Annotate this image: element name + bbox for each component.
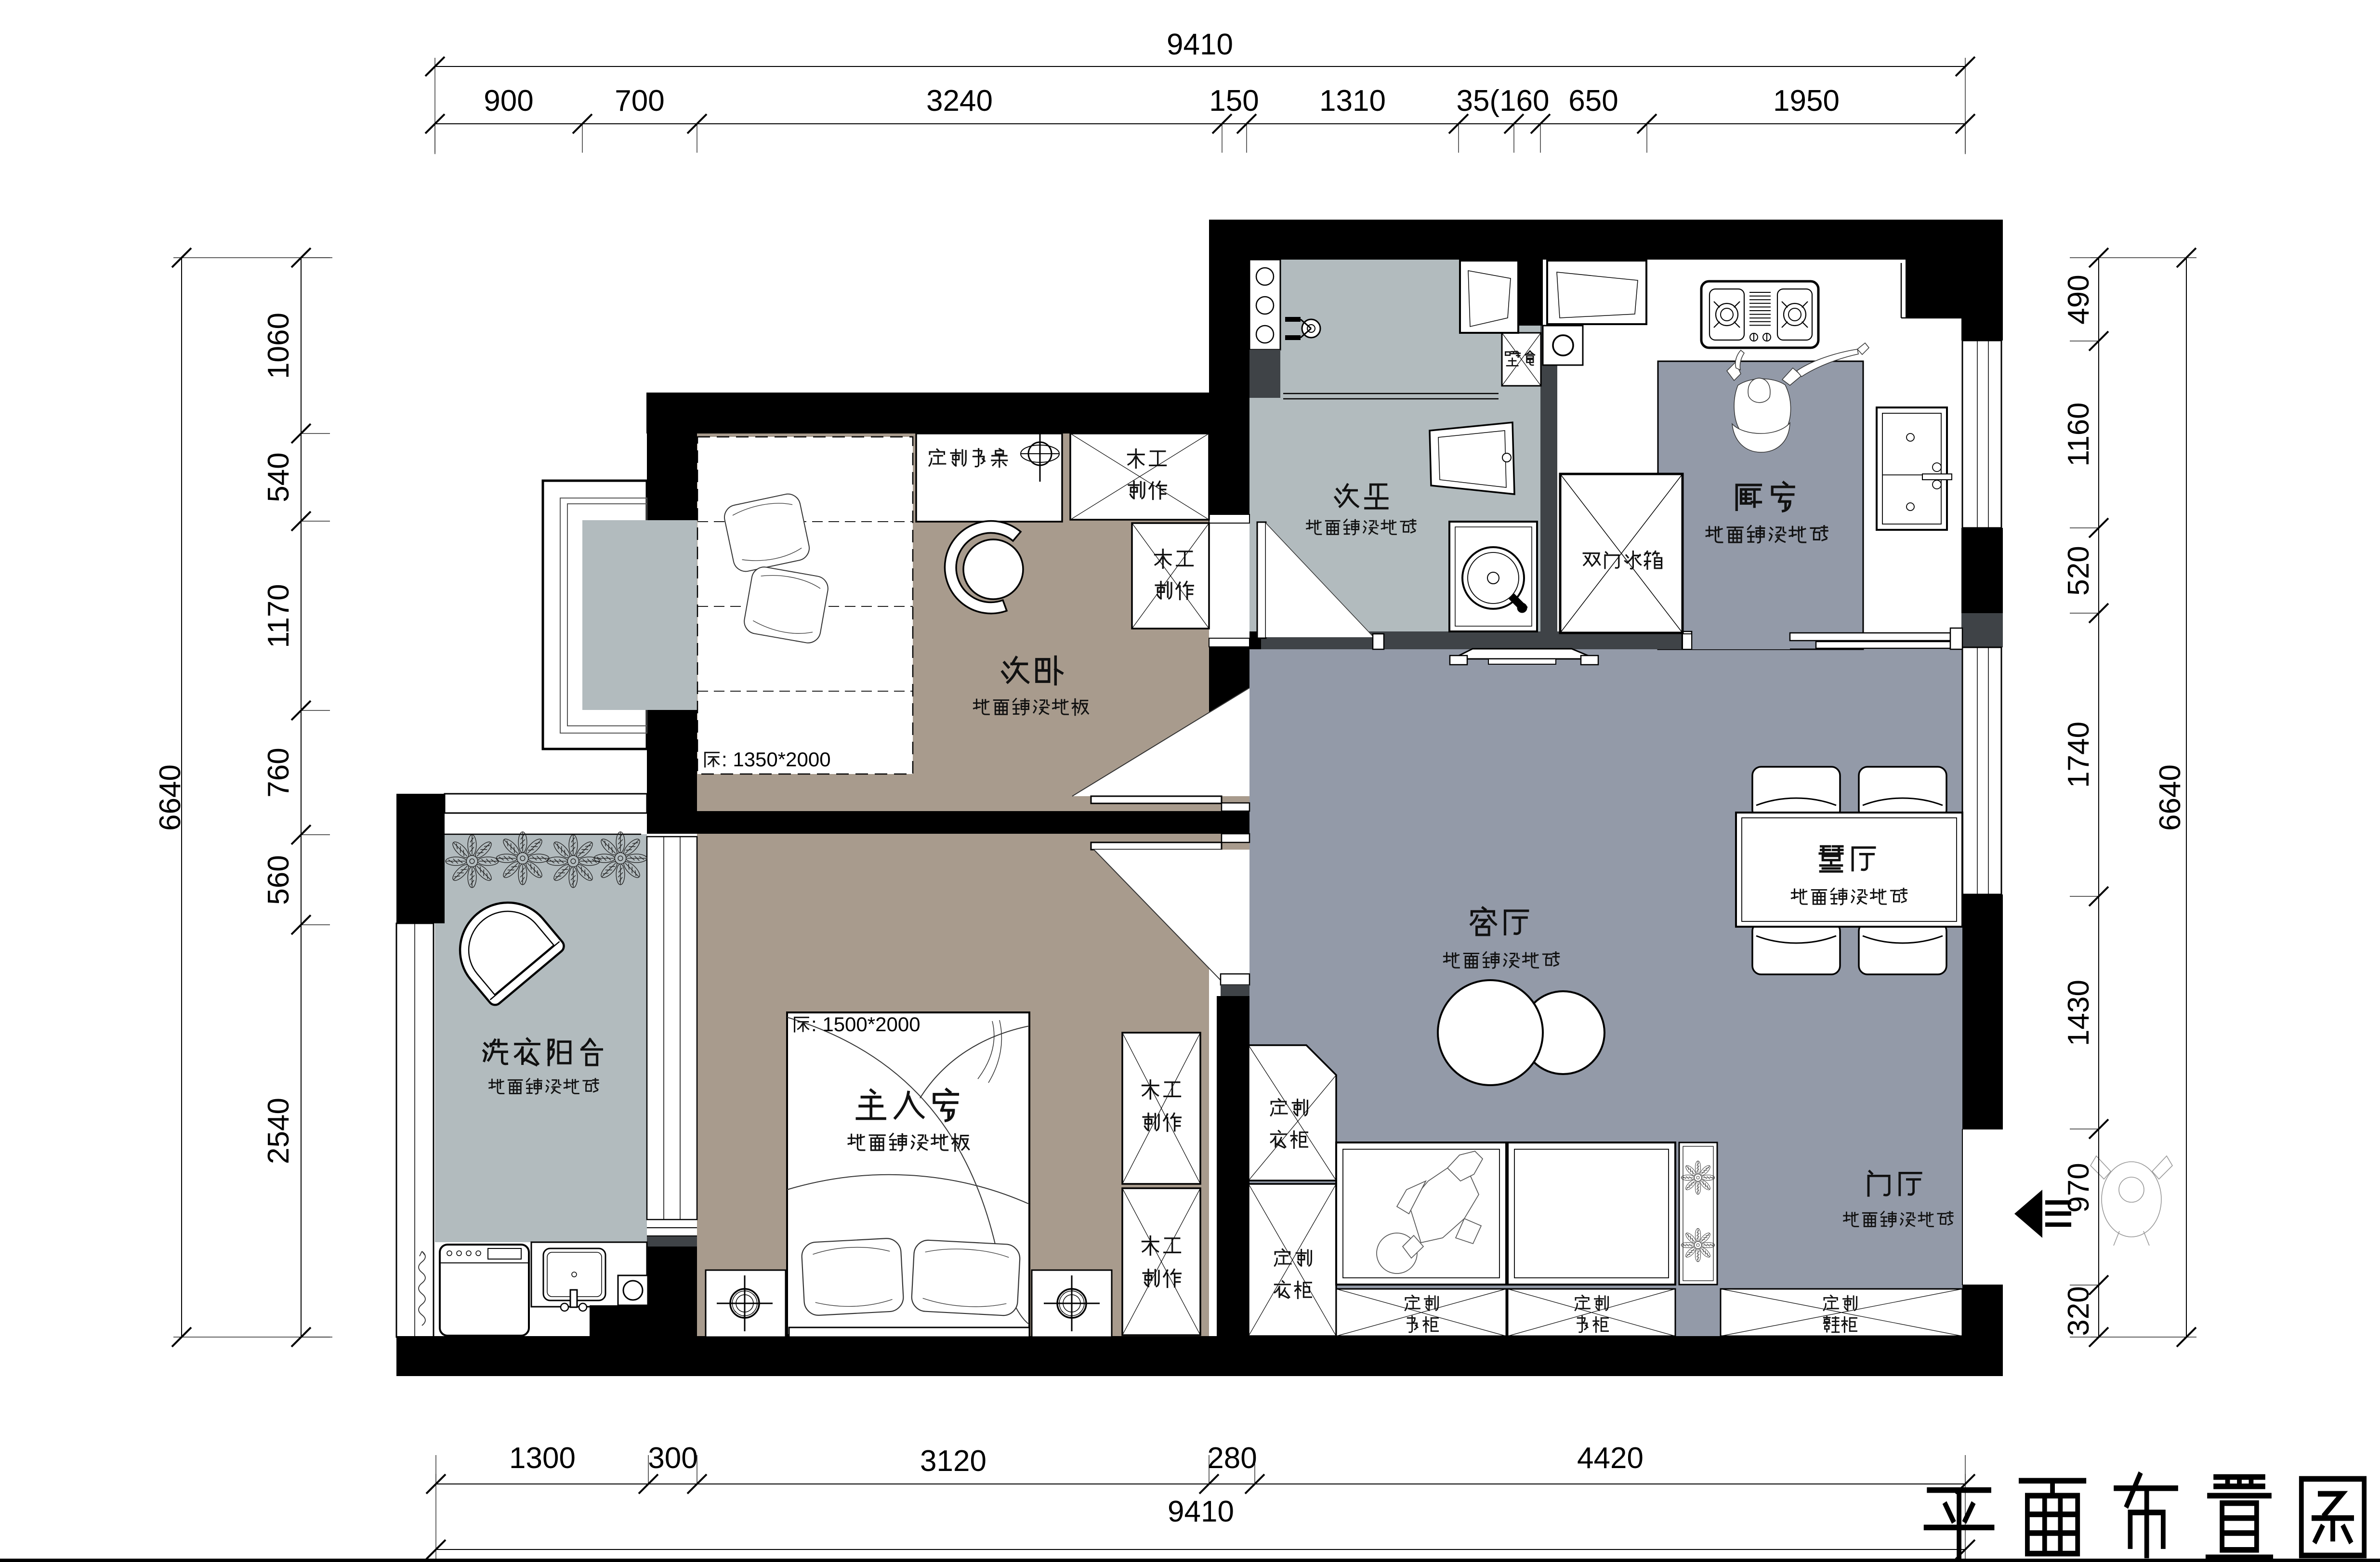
svg-text:9410: 9410 [1168, 1495, 1234, 1528]
svg-text:560: 560 [262, 855, 295, 905]
svg-text:280: 280 [1207, 1442, 1257, 1475]
svg-text:490: 490 [2062, 275, 2095, 324]
svg-text:1310: 1310 [1319, 84, 1386, 118]
svg-text:6640: 6640 [154, 764, 187, 831]
svg-text:520: 520 [2062, 546, 2095, 595]
svg-text:2540: 2540 [262, 1098, 295, 1164]
svg-text:320: 320 [2062, 1286, 2095, 1336]
svg-text:1950: 1950 [1773, 84, 1840, 118]
svg-text:: 1500*2000: : 1500*2000 [811, 1013, 920, 1036]
svg-text:760: 760 [262, 748, 295, 797]
svg-text:6640: 6640 [2154, 764, 2187, 831]
svg-text:4420: 4420 [1577, 1442, 1644, 1475]
svg-text:300: 300 [648, 1442, 697, 1475]
svg-text:650: 650 [1568, 84, 1618, 118]
svg-text:150: 150 [1209, 84, 1259, 118]
svg-text:900: 900 [484, 84, 533, 118]
svg-text:: 1350*2000: : 1350*2000 [722, 748, 831, 771]
svg-text:35(160: 35(160 [1456, 84, 1549, 118]
svg-text:700: 700 [615, 84, 664, 118]
svg-text:1740: 1740 [2062, 722, 2095, 788]
svg-text:1060: 1060 [262, 313, 295, 379]
svg-text:1430: 1430 [2062, 980, 2095, 1046]
svg-text:1170: 1170 [262, 584, 295, 648]
svg-text:1300: 1300 [509, 1442, 576, 1475]
svg-text:3120: 3120 [920, 1444, 986, 1478]
svg-text:1160: 1160 [2062, 402, 2095, 466]
svg-text:9410: 9410 [1167, 28, 1233, 61]
svg-text:3240: 3240 [926, 84, 993, 118]
svg-text:540: 540 [262, 452, 295, 502]
svg-text:970: 970 [2062, 1163, 2095, 1212]
